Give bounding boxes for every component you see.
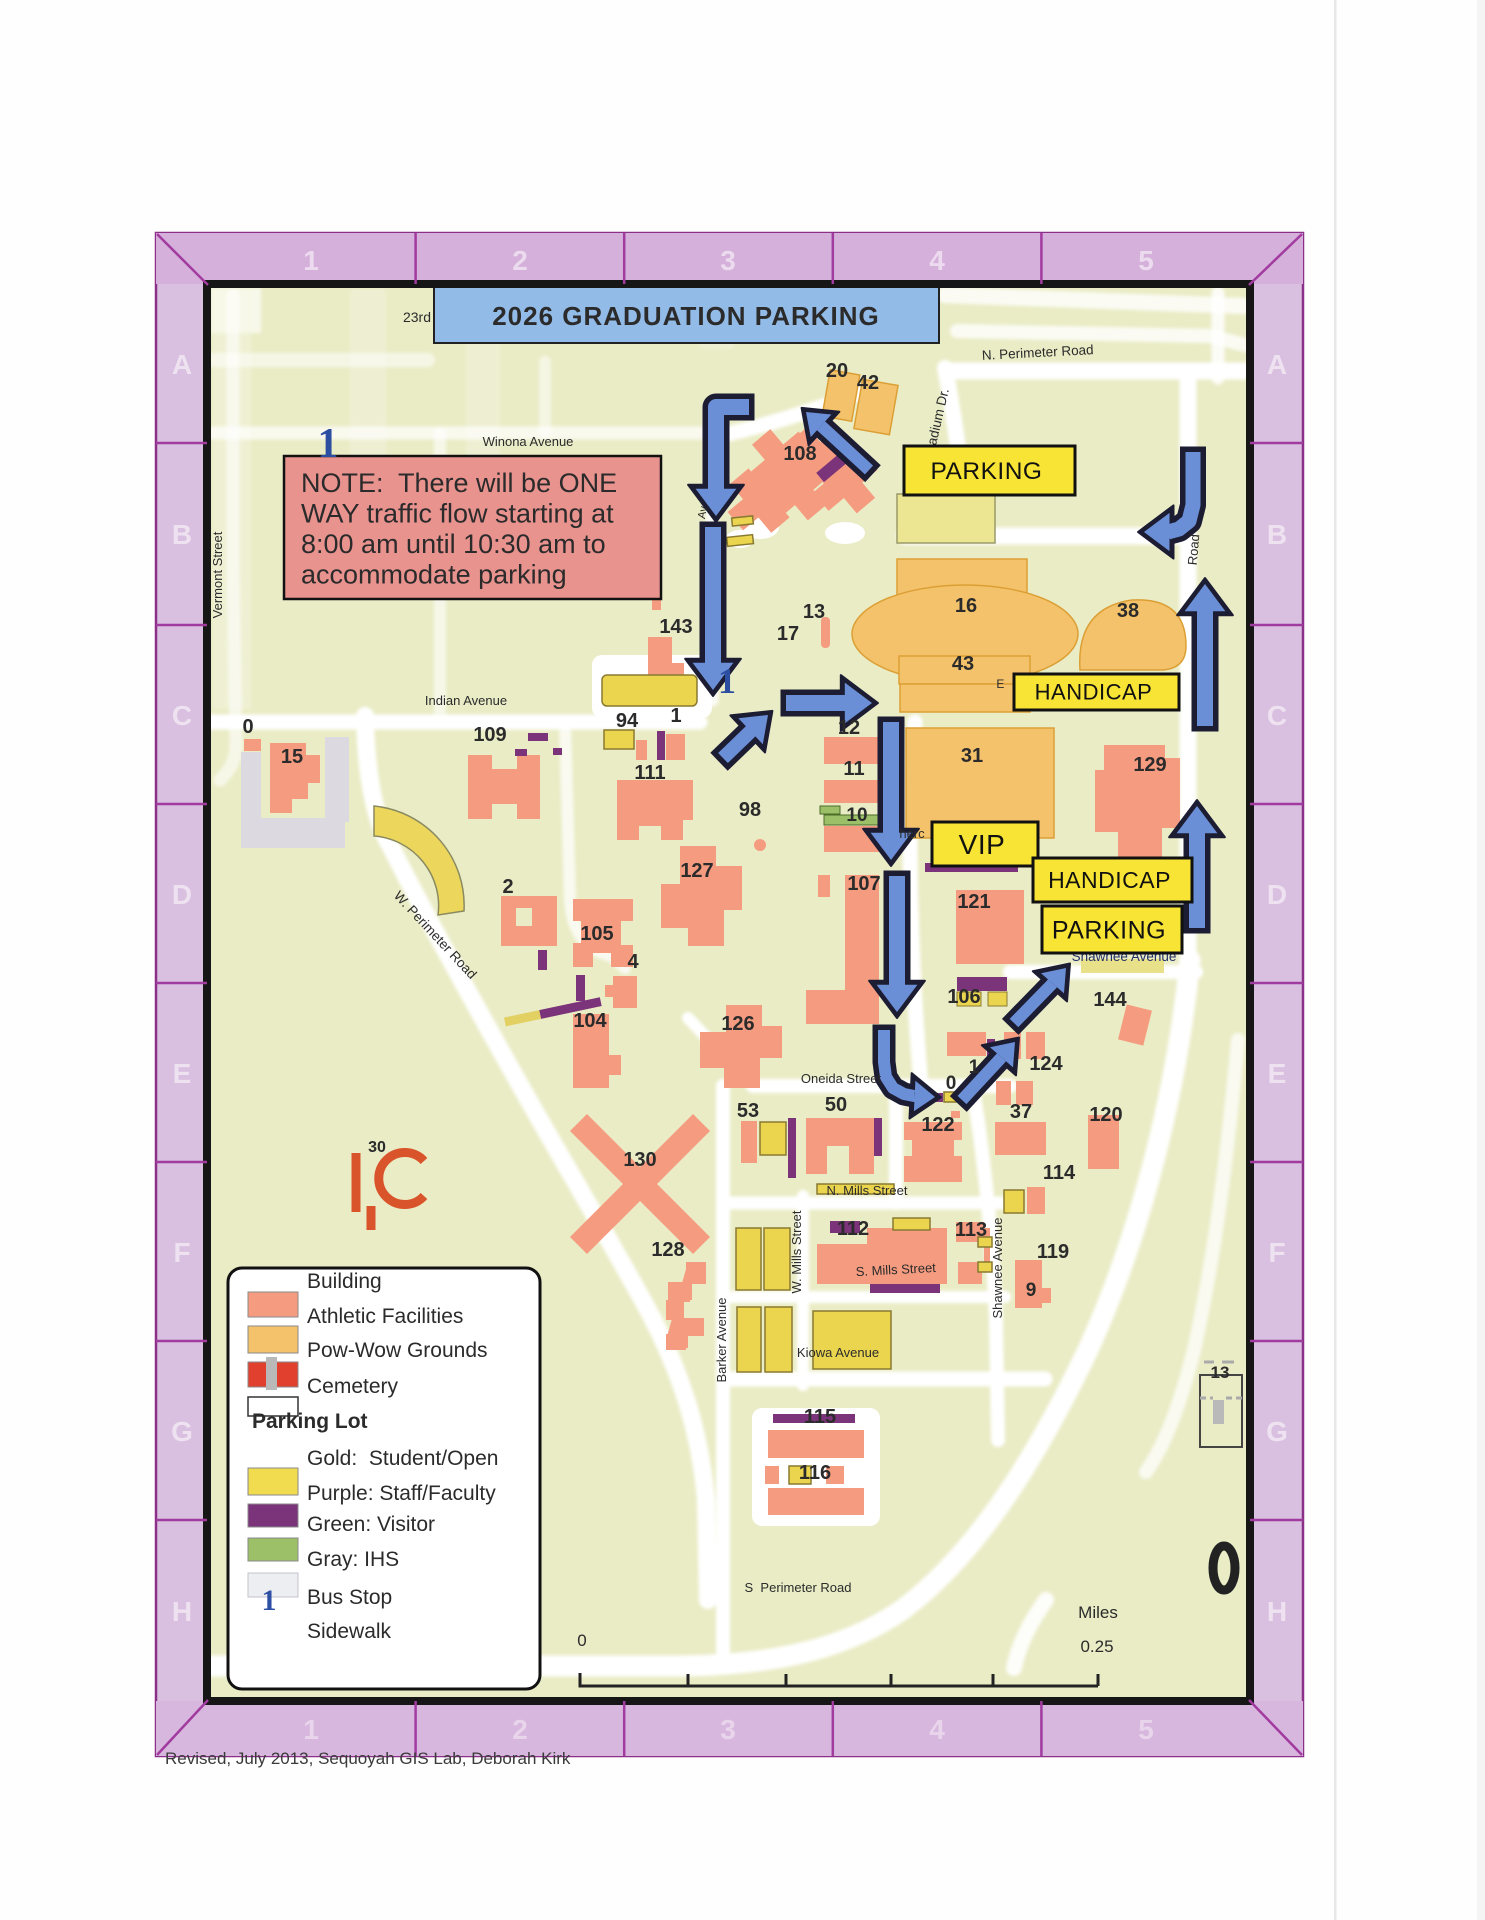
svg-text:1: 1 (318, 421, 339, 467)
svg-text:Gray: IHS: Gray: IHS (307, 1548, 399, 1571)
svg-text:Av: Av (696, 505, 710, 520)
svg-text:8:00 am until 10:30 am to: 8:00 am until 10:30 am to (301, 529, 606, 559)
svg-text:120: 120 (1089, 1104, 1122, 1126)
svg-text:Cemetery: Cemetery (307, 1375, 399, 1398)
svg-text:23rd: 23rd (403, 309, 431, 325)
svg-text:PARKING: PARKING (1052, 916, 1166, 944)
svg-text:1: 1 (303, 245, 319, 276)
svg-text:109: 109 (473, 724, 506, 746)
svg-text:E: E (1268, 1058, 1287, 1089)
svg-text:130: 130 (623, 1149, 656, 1171)
svg-text:herc: herc (899, 826, 925, 841)
svg-text:G: G (171, 1416, 193, 1447)
svg-text:111: 111 (634, 762, 665, 784)
svg-text:127: 127 (680, 860, 713, 882)
svg-text:C: C (1267, 700, 1287, 731)
svg-text:S Perimeter Road: S Perimeter Road (745, 1580, 852, 1595)
svg-text:accommodate parking: accommodate parking (301, 560, 567, 590)
svg-text:115: 115 (804, 1406, 836, 1428)
svg-text:D: D (1267, 879, 1287, 910)
svg-text:1: 1 (670, 705, 681, 727)
svg-text:Winona Avenue: Winona Avenue (483, 434, 574, 449)
svg-text:A: A (172, 349, 192, 380)
svg-text:119: 119 (1037, 1241, 1069, 1263)
svg-text:13: 13 (803, 601, 825, 623)
svg-text:NOTE: There will be ONE: NOTE: There will be ONE (301, 468, 617, 498)
svg-text:5: 5 (1138, 245, 1154, 276)
svg-text:0: 0 (946, 1073, 957, 1094)
svg-text:HANDICAP: HANDICAP (1048, 867, 1171, 893)
svg-text:Miles: Miles (1078, 1603, 1118, 1622)
svg-text:128: 128 (651, 1239, 684, 1261)
svg-text:D: D (172, 879, 192, 910)
svg-text:5: 5 (1138, 1714, 1154, 1745)
svg-text:Road: Road (1185, 533, 1203, 565)
svg-text:WAY traffic flow starting at: WAY traffic flow starting at (301, 499, 614, 529)
svg-text:PARKING: PARKING (931, 458, 1043, 485)
svg-text:12: 12 (838, 717, 860, 739)
svg-text:17: 17 (777, 623, 799, 645)
svg-text:105: 105 (580, 923, 613, 945)
svg-text:C: C (172, 700, 192, 731)
svg-text:A: A (1267, 349, 1287, 380)
svg-text:VIP: VIP (959, 829, 1006, 860)
svg-text:W. Mills Street: W. Mills Street (789, 1210, 804, 1293)
svg-text:108: 108 (783, 443, 816, 465)
svg-text:Kiowa Avenue: Kiowa Avenue (797, 1345, 879, 1360)
svg-text:20: 20 (826, 360, 848, 382)
svg-text:2: 2 (512, 1714, 528, 1745)
svg-text:15: 15 (281, 746, 303, 768)
svg-text:2: 2 (502, 876, 513, 898)
svg-text:116: 116 (799, 1462, 831, 1484)
svg-text:10: 10 (846, 805, 867, 826)
svg-text:50: 50 (825, 1094, 847, 1116)
svg-text:Parking Lot: Parking Lot (252, 1410, 368, 1433)
svg-text:1: 1 (718, 661, 736, 701)
svg-text:42: 42 (857, 372, 879, 394)
svg-text:H: H (172, 1596, 192, 1627)
svg-text:106: 106 (947, 986, 980, 1008)
svg-text:43: 43 (952, 653, 974, 675)
svg-text:0.25: 0.25 (1080, 1637, 1113, 1656)
svg-text:107: 107 (847, 873, 880, 895)
svg-text:129: 129 (1133, 754, 1166, 776)
svg-text:9: 9 (1026, 1280, 1037, 1301)
svg-text:113: 113 (955, 1219, 987, 1241)
svg-text:31: 31 (961, 745, 983, 767)
svg-text:122: 122 (921, 1114, 954, 1136)
svg-text:3: 3 (720, 1714, 736, 1745)
svg-text:30: 30 (368, 1139, 386, 1156)
svg-text:112: 112 (837, 1218, 869, 1240)
svg-text:Shawnee Avenue: Shawnee Avenue (990, 1218, 1005, 1319)
svg-text:1: 1 (969, 1057, 980, 1078)
svg-text:Barker Avenue: Barker Avenue (714, 1297, 729, 1382)
svg-text:Indian Avenue: Indian Avenue (425, 693, 507, 708)
svg-text:3: 3 (720, 245, 736, 276)
svg-text:1: 1 (262, 1584, 277, 1617)
svg-text:1: 1 (303, 1714, 319, 1745)
svg-text:0: 0 (242, 716, 253, 738)
svg-text:104: 104 (573, 1010, 607, 1032)
svg-text:11: 11 (843, 758, 864, 780)
svg-text:2: 2 (512, 245, 528, 276)
svg-text:Purple: Staff/Faculty: Purple: Staff/Faculty (307, 1482, 496, 1505)
svg-text:E: E (173, 1058, 192, 1089)
svg-text:4: 4 (929, 1714, 945, 1745)
svg-text:124: 124 (1029, 1053, 1063, 1075)
svg-text:2026 GRADUATION PARKING: 2026 GRADUATION PARKING (492, 301, 880, 331)
svg-text:98: 98 (739, 799, 761, 821)
svg-text:126: 126 (721, 1013, 754, 1035)
svg-text:Gold: Student/Open: Gold: Student/Open (307, 1447, 498, 1470)
svg-text:37: 37 (1010, 1101, 1032, 1123)
svg-text:E: E (996, 677, 1007, 691)
svg-text:13: 13 (1211, 1363, 1230, 1382)
svg-text:38: 38 (1117, 600, 1139, 622)
svg-text:53: 53 (737, 1100, 759, 1122)
svg-text:Revised, July 2013, Sequoyah G: Revised, July 2013, Sequoyah GIS Lab, De… (165, 1749, 571, 1768)
svg-text:0: 0 (577, 1631, 586, 1650)
svg-text:Sidewalk: Sidewalk (307, 1620, 392, 1643)
svg-text:B: B (172, 519, 192, 550)
svg-text:H: H (1267, 1596, 1287, 1627)
svg-text:G: G (1266, 1416, 1288, 1447)
svg-text:121: 121 (957, 891, 990, 913)
svg-text:143: 143 (659, 616, 692, 638)
svg-text:Athletic Facilities: Athletic Facilities (307, 1305, 463, 1328)
svg-text:Vermont Street: Vermont Street (210, 531, 225, 618)
svg-text:Bus Stop: Bus Stop (307, 1586, 392, 1609)
svg-text:Oneida Street: Oneida Street (801, 1071, 882, 1086)
svg-text:Green: Visitor: Green: Visitor (307, 1513, 435, 1536)
svg-text:F: F (173, 1237, 190, 1268)
svg-text:B: B (1267, 519, 1287, 550)
svg-text:4: 4 (627, 951, 639, 973)
svg-text:144: 144 (1093, 989, 1127, 1011)
svg-text:4: 4 (929, 245, 945, 276)
svg-text:F: F (1268, 1237, 1285, 1268)
svg-text:Building: Building (307, 1270, 382, 1293)
svg-text:114: 114 (1043, 1162, 1076, 1184)
svg-text:Pow-Wow Grounds: Pow-Wow Grounds (307, 1339, 488, 1362)
svg-text:16: 16 (955, 595, 977, 617)
svg-text:N. Mills Street: N. Mills Street (827, 1183, 908, 1198)
svg-text:HANDICAP: HANDICAP (1035, 680, 1153, 705)
svg-text:94: 94 (616, 710, 639, 732)
